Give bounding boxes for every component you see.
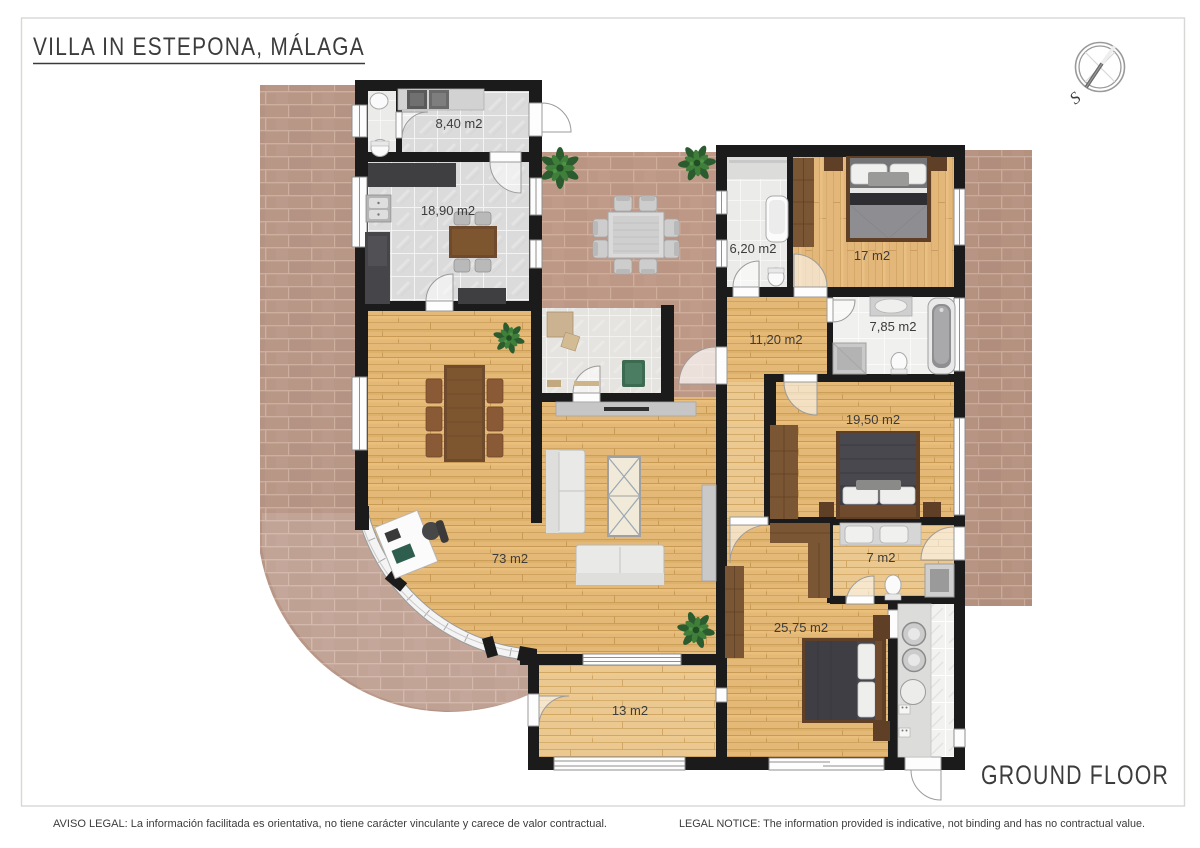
svg-text:13 m2: 13 m2 bbox=[612, 703, 648, 718]
svg-text:17 m2: 17 m2 bbox=[854, 248, 890, 263]
svg-text:73 m2: 73 m2 bbox=[492, 551, 528, 566]
svg-text:6,20 m2: 6,20 m2 bbox=[730, 241, 777, 256]
svg-text:18,90 m2: 18,90 m2 bbox=[421, 203, 475, 218]
svg-text:8,40 m2: 8,40 m2 bbox=[436, 116, 483, 131]
svg-text:7 m2: 7 m2 bbox=[867, 550, 896, 565]
svg-text:AVISO LEGAL: La información fa: AVISO LEGAL: La información facilitada e… bbox=[53, 818, 607, 830]
svg-text:25,75 m2: 25,75 m2 bbox=[774, 620, 828, 635]
svg-text:VILLA IN ESTEPONA, MÁLAGA: VILLA IN ESTEPONA, MÁLAGA bbox=[33, 32, 365, 61]
svg-text:11,20 m2: 11,20 m2 bbox=[749, 332, 802, 347]
svg-text:GROUND FLOOR: GROUND FLOOR bbox=[981, 760, 1169, 790]
svg-text:7,85 m2: 7,85 m2 bbox=[870, 319, 917, 334]
svg-text:19,50 m2: 19,50 m2 bbox=[846, 412, 900, 427]
svg-text:LEGAL NOTICE: The information: LEGAL NOTICE: The information provided i… bbox=[679, 818, 1145, 830]
